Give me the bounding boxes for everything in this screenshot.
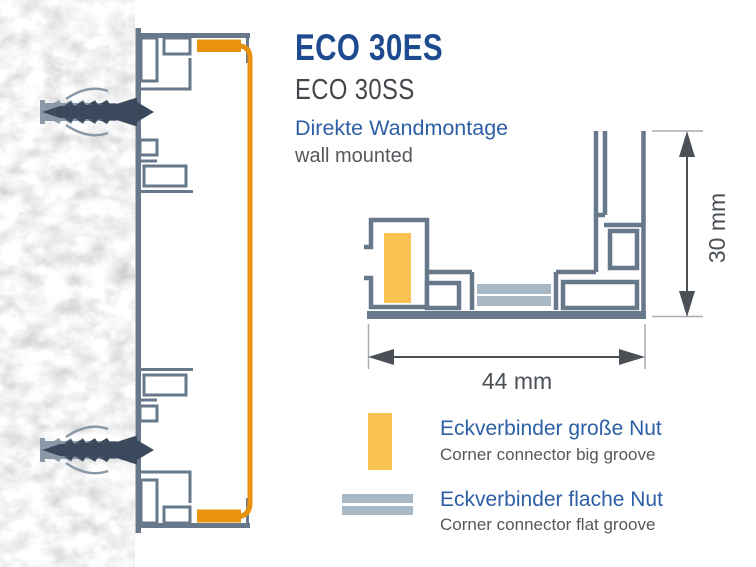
- legend-label-flat-groove-de: Eckverbinder flache Nut: [440, 488, 663, 512]
- height-dimension-label: 30 mm: [704, 168, 728, 288]
- wall-texture: [0, 0, 135, 567]
- legend-label-big-groove-en: Corner connector big groove: [440, 445, 655, 465]
- graphic-panel-line: [197, 40, 250, 523]
- legend-swatch-flat-groove-bar2: [342, 506, 413, 515]
- top-profile-section: [137, 36, 250, 192]
- bottom-profile-section: [137, 370, 250, 526]
- legend-swatch-big-groove: [368, 413, 392, 470]
- legend-label-big-groove-de: Eckverbinder große Nut: [440, 417, 662, 441]
- wall-mount-diagram: ECO 30ES ECO 30SS Direkte Wandmontage wa…: [0, 0, 756, 567]
- legend-label-flat-groove-en: Corner connector flat groove: [440, 515, 655, 535]
- dimension-44mm: [368, 324, 645, 369]
- legend-swatch-flat-groove-bar1: [342, 494, 413, 503]
- width-dimension-label: 44 mm: [447, 368, 587, 395]
- mounting-type-en: wall mounted: [295, 145, 413, 168]
- mounting-type-de: Direkte Wandmontage: [295, 116, 508, 141]
- dimension-30mm: [652, 131, 703, 317]
- product-variant: ECO 30SS: [295, 74, 415, 107]
- product-title: ECO 30ES: [295, 27, 443, 69]
